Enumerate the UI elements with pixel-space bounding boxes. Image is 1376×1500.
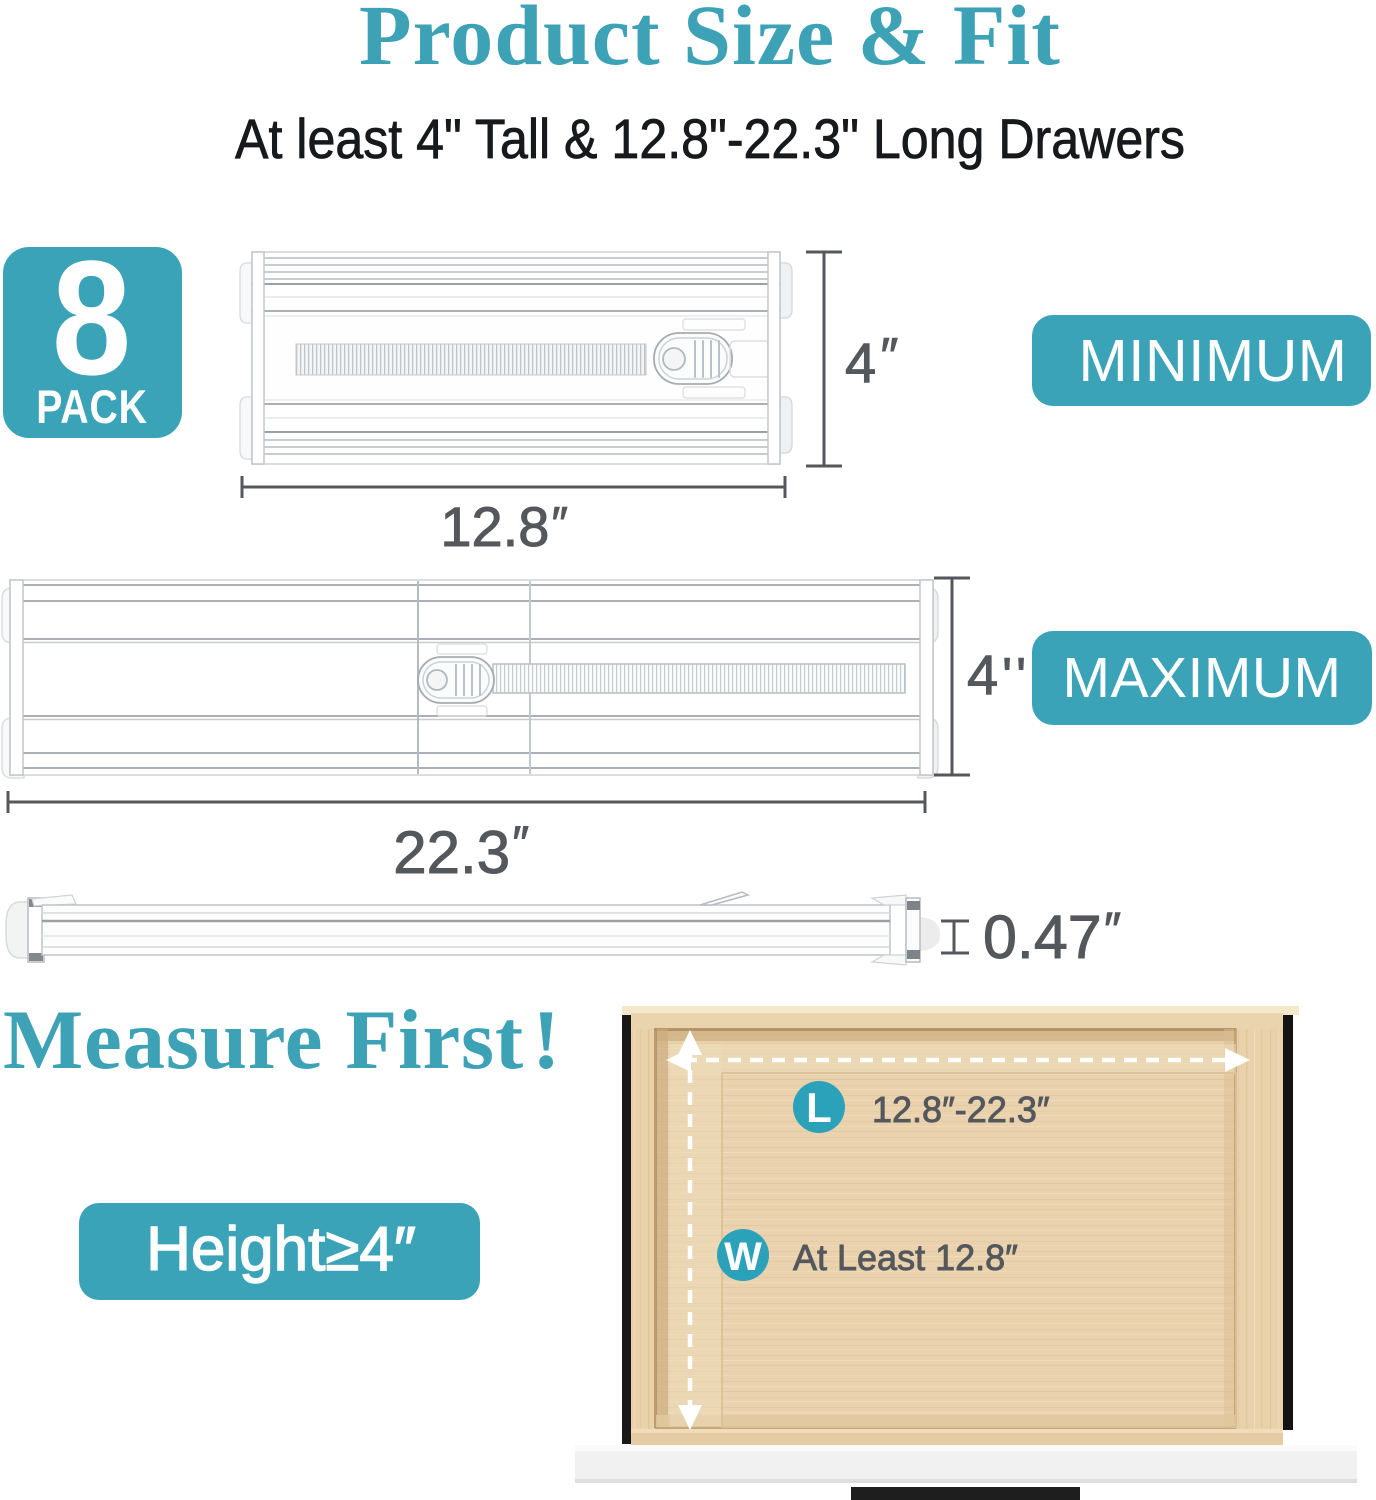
svg-text:MINIMUM: MINIMUM (1079, 328, 1348, 394)
svg-text:Product Size & Fit: Product Size & Fit (359, 0, 1061, 83)
svg-text:12.8″: 12.8″ (440, 495, 567, 558)
svg-text:L: L (806, 1084, 832, 1131)
svg-text:MAXIMUM: MAXIMUM (1063, 646, 1342, 710)
svg-text:At least 4" Tall & 12.8"-22.3": At least 4" Tall & 12.8"-22.3" Long Draw… (235, 107, 1185, 170)
svg-text:Measure First!: Measure First! (3, 993, 561, 1087)
svg-text:W: W (724, 1235, 762, 1279)
svg-text:0.47″: 0.47″ (983, 903, 1121, 971)
svg-text:At Least 12.8″: At Least 12.8″ (793, 1237, 1018, 1278)
svg-text:PACK: PACK (36, 382, 148, 434)
svg-text:12.8″-22.3″: 12.8″-22.3″ (872, 1089, 1050, 1130)
svg-text:Height≥4″: Height≥4″ (146, 1215, 416, 1284)
svg-text:22.3″: 22.3″ (393, 816, 528, 886)
